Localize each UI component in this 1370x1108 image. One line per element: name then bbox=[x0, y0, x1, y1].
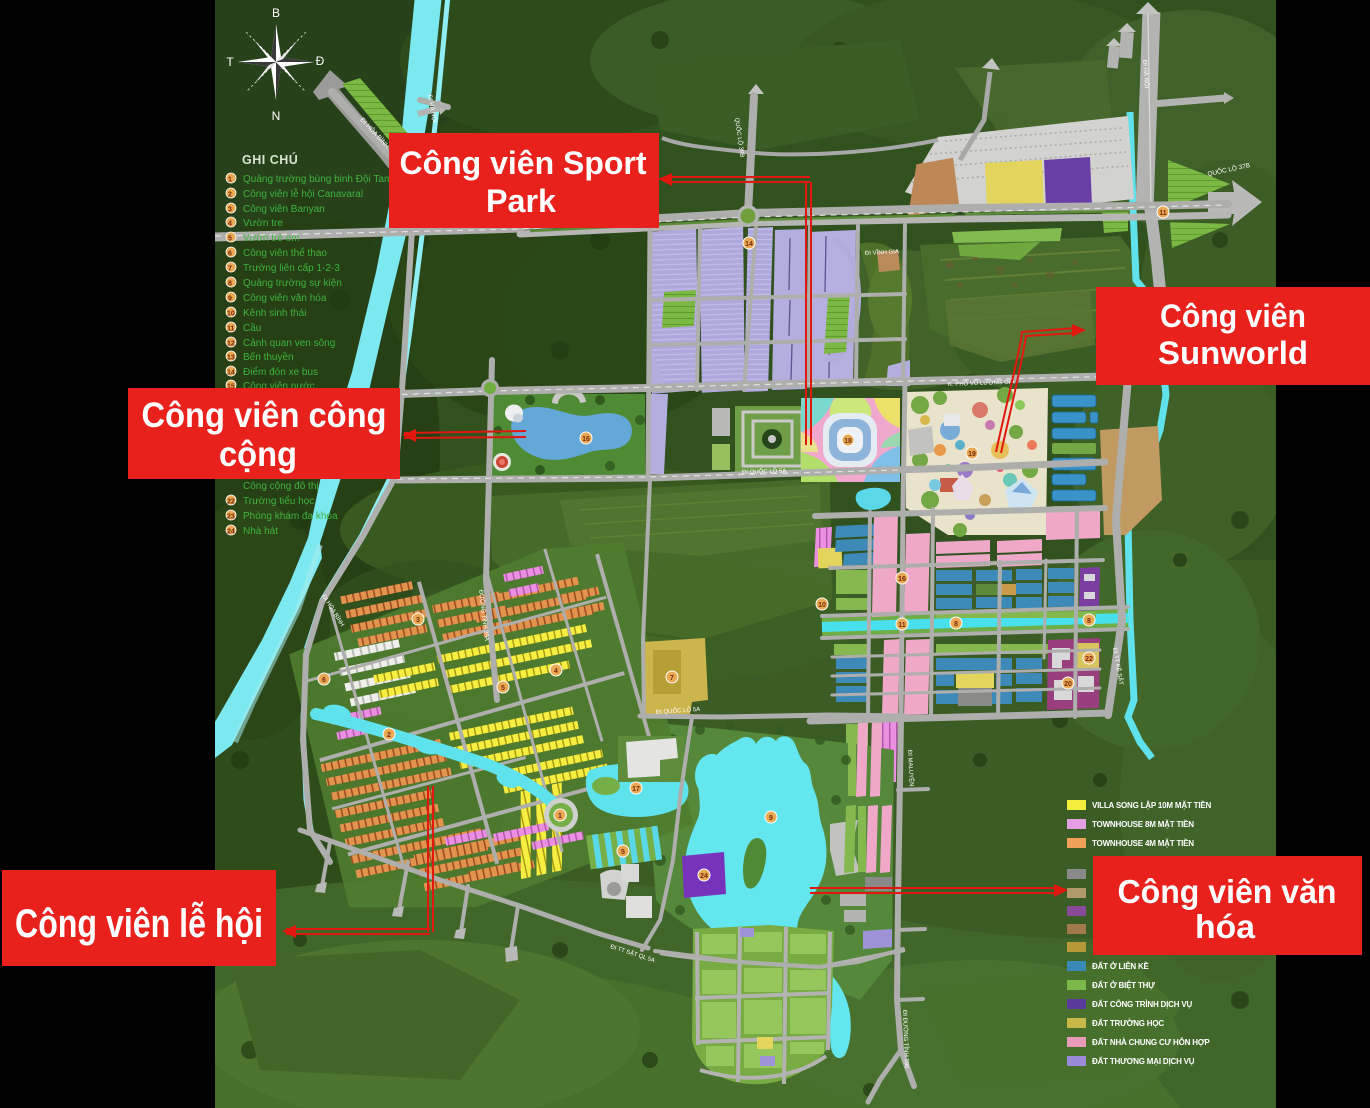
svg-text:Bến thuyền: Bến thuyền bbox=[243, 351, 294, 363]
svg-text:Công viên văn: Công viên văn bbox=[1118, 873, 1337, 910]
svg-text:24: 24 bbox=[700, 873, 708, 880]
svg-text:12: 12 bbox=[227, 341, 235, 348]
svg-text:8: 8 bbox=[954, 621, 958, 628]
svg-text:ĐẤT TRƯỜNG HỌC: ĐẤT TRƯỜNG HỌC bbox=[1092, 1018, 1164, 1028]
svg-text:4: 4 bbox=[228, 221, 232, 228]
svg-text:10: 10 bbox=[227, 311, 235, 318]
svg-text:16: 16 bbox=[898, 576, 906, 583]
svg-text:19: 19 bbox=[968, 451, 976, 458]
svg-text:Trường tiểu học: Trường tiểu học bbox=[243, 495, 314, 507]
svg-text:7: 7 bbox=[228, 266, 232, 273]
svg-text:7: 7 bbox=[670, 675, 674, 682]
svg-text:5: 5 bbox=[228, 236, 232, 243]
svg-text:T: T bbox=[226, 55, 234, 69]
svg-text:3: 3 bbox=[416, 617, 420, 624]
svg-text:Công viên lễ hội Canavaral: Công viên lễ hội Canavaral bbox=[243, 187, 363, 200]
svg-text:VILLA SONG LẬP 10M MẶT TIỀN: VILLA SONG LẬP 10M MẶT TIỀN bbox=[1092, 800, 1211, 810]
svg-text:2: 2 bbox=[387, 732, 391, 739]
svg-text:TOWNHOUSE 8M MẶT TIỀN: TOWNHOUSE 8M MẶT TIỀN bbox=[1092, 819, 1194, 829]
svg-text:5: 5 bbox=[621, 849, 625, 856]
svg-text:9: 9 bbox=[228, 296, 232, 303]
svg-text:4: 4 bbox=[554, 668, 558, 675]
svg-text:ĐẤT CÔNG TRÌNH DỊCH VỤ: ĐẤT CÔNG TRÌNH DỊCH VỤ bbox=[1092, 999, 1192, 1009]
svg-text:B: B bbox=[272, 6, 280, 20]
svg-text:Trường liên cấp 1-2-3: Trường liên cấp 1-2-3 bbox=[243, 262, 340, 274]
svg-text:ĐẤT THƯƠNG MẠI DỊCH VỤ: ĐẤT THƯƠNG MẠI DỊCH VỤ bbox=[1092, 1056, 1195, 1066]
svg-text:1: 1 bbox=[228, 177, 232, 184]
svg-text:6: 6 bbox=[322, 677, 326, 684]
svg-text:Công viên Sport: Công viên Sport bbox=[400, 145, 647, 181]
svg-text:ĐẤT Ở LIÊN KỀ: ĐẤT Ở LIÊN KỀ bbox=[1092, 961, 1150, 971]
svg-text:23: 23 bbox=[227, 514, 235, 521]
svg-text:Vườn trẻ em: Vườn trẻ em bbox=[243, 233, 300, 244]
svg-text:Công viên Banyan: Công viên Banyan bbox=[243, 204, 325, 215]
svg-text:11: 11 bbox=[1159, 210, 1167, 217]
svg-text:ĐẤT Ở BIỆT THỰ: ĐẤT Ở BIỆT THỰ bbox=[1092, 980, 1155, 990]
svg-text:TOWNHOUSE 4M MẶT TIỀN: TOWNHOUSE 4M MẶT TIỀN bbox=[1092, 838, 1194, 848]
svg-text:ĐẤT NHÀ CHUNG CƯ HỖN HỢP: ĐẤT NHÀ CHUNG CƯ HỖN HỢP bbox=[1092, 1037, 1210, 1047]
svg-text:24: 24 bbox=[227, 529, 235, 536]
svg-text:11: 11 bbox=[227, 326, 235, 333]
svg-text:Đ: Đ bbox=[316, 54, 325, 68]
svg-text:14: 14 bbox=[227, 370, 235, 377]
svg-text:Phòng khám đa khoa: Phòng khám đa khoa bbox=[243, 511, 338, 522]
svg-text:Điểm đón xe bus: Điểm đón xe bus bbox=[243, 366, 318, 378]
svg-text:Park: Park bbox=[486, 183, 556, 219]
svg-text:3: 3 bbox=[228, 207, 232, 214]
svg-text:22: 22 bbox=[1085, 656, 1093, 663]
svg-text:Kênh sinh thái: Kênh sinh thái bbox=[243, 308, 306, 319]
svg-text:14: 14 bbox=[745, 241, 753, 248]
svg-text:N: N bbox=[272, 109, 281, 123]
svg-text:22: 22 bbox=[227, 499, 235, 506]
svg-text:Vườn tre: Vườn tre bbox=[243, 218, 283, 229]
svg-text:Công viên văn hóa: Công viên văn hóa bbox=[243, 293, 327, 304]
svg-text:Công cộng đô thị: Công cộng đô thị bbox=[243, 481, 319, 492]
svg-text:6: 6 bbox=[228, 251, 232, 258]
svg-text:16: 16 bbox=[582, 436, 590, 443]
svg-text:8: 8 bbox=[228, 281, 232, 288]
svg-text:Cảnh quan ven sông: Cảnh quan ven sông bbox=[243, 338, 335, 349]
svg-text:Cầu: Cầu bbox=[243, 322, 261, 334]
svg-text:9: 9 bbox=[769, 815, 773, 822]
svg-text:GHI CHÚ: GHI CHÚ bbox=[242, 152, 298, 167]
svg-text:13: 13 bbox=[227, 355, 235, 362]
svg-text:Công viên: Công viên bbox=[1160, 298, 1306, 334]
svg-text:Quảng trường bùng binh Đội Tam: Quảng trường bùng binh Đội Tam bbox=[243, 174, 392, 185]
svg-text:Công viên thể thao: Công viên thể thao bbox=[243, 247, 327, 259]
svg-text:Quảng trường sự kiện: Quảng trường sự kiện bbox=[243, 278, 342, 289]
svg-text:Nhà hát: Nhà hát bbox=[243, 526, 278, 537]
svg-text:18: 18 bbox=[844, 438, 852, 445]
svg-text:5: 5 bbox=[501, 685, 505, 692]
svg-text:11: 11 bbox=[898, 622, 906, 629]
svg-text:cộng: cộng bbox=[219, 435, 297, 474]
svg-text:Công viên công: Công viên công bbox=[142, 396, 387, 435]
svg-text:10: 10 bbox=[818, 602, 826, 609]
svg-text:Sunworld: Sunworld bbox=[1158, 335, 1308, 371]
svg-text:1: 1 bbox=[558, 813, 562, 820]
svg-text:2: 2 bbox=[228, 192, 232, 199]
svg-text:8: 8 bbox=[1087, 618, 1091, 625]
svg-text:20: 20 bbox=[1064, 681, 1072, 688]
svg-text:17: 17 bbox=[632, 786, 640, 793]
svg-text:Công viên lễ hội: Công viên lễ hội bbox=[15, 900, 263, 946]
svg-text:hóa: hóa bbox=[1195, 908, 1256, 945]
